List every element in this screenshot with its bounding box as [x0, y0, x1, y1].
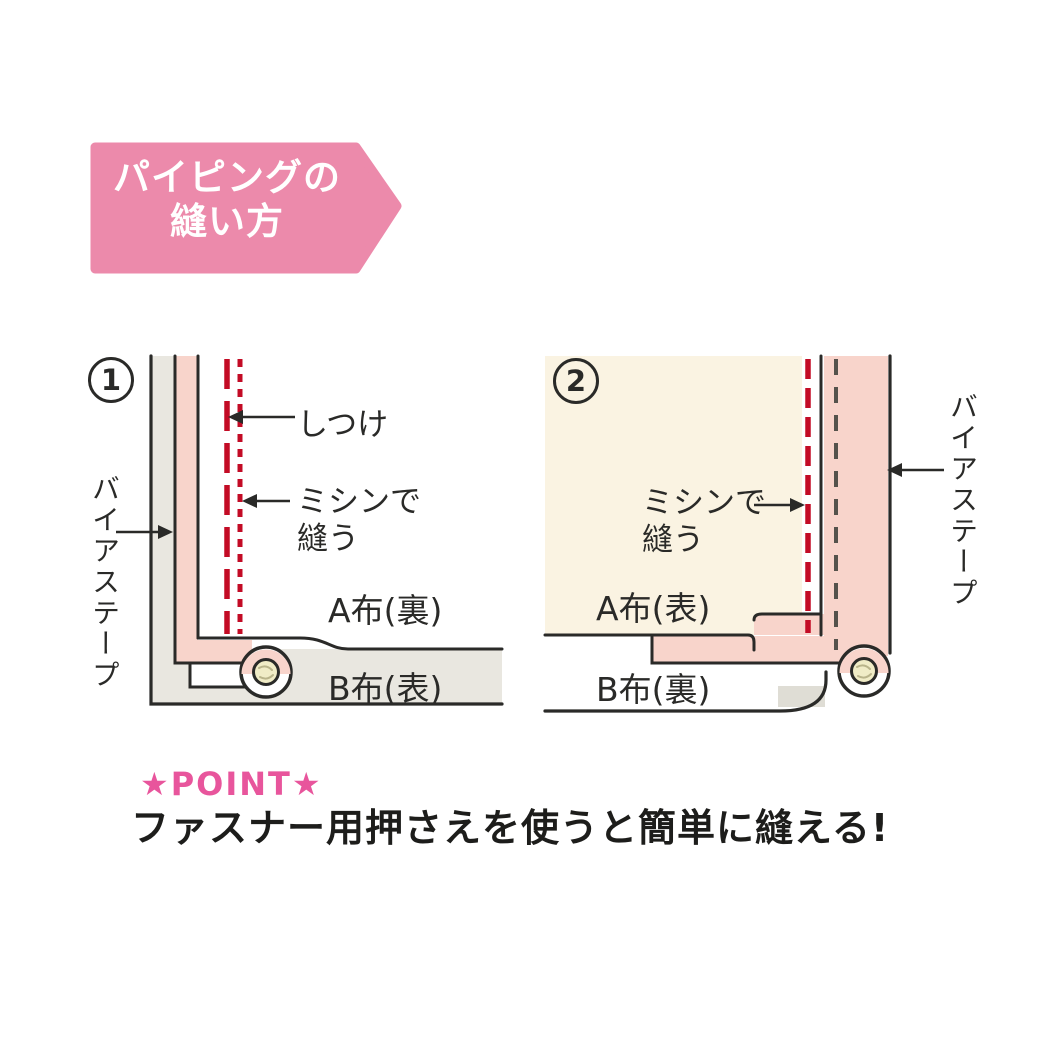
basting-label: しつけ: [297, 399, 388, 444]
machine-sew-label-1: ミシンで 縫う: [297, 484, 421, 558]
page-title-line2: 縫い方: [88, 200, 366, 244]
page-title: パイピングの 縫い方: [88, 156, 366, 243]
point-text: ファスナー用押さえを使うと簡単に縫える!: [131, 797, 889, 852]
bias-tape-arrow-icon-1: [116, 525, 174, 539]
step-number-2: 2: [553, 358, 599, 404]
step-number-1-text: 1: [101, 363, 121, 397]
machine-sew-label-2: ミシンで 縫う: [642, 485, 766, 559]
bias-tape-label-1: バイアステープ: [84, 474, 124, 691]
fabric-b-label-1: B布(表): [328, 662, 442, 710]
step-number-2-text: 2: [566, 364, 586, 398]
machine-sew-label-2-line1: ミシンで: [642, 485, 766, 522]
fabric-b-fold-patch: [778, 686, 825, 707]
bias-tape-fold-step: [754, 614, 824, 635]
bias-tape-label-2: バイアステープ: [942, 392, 982, 609]
fabric-a-label-2: A布(表): [596, 582, 710, 630]
page: { "banner": { "title_line1": "パイピングの", "…: [0, 0, 1040, 1040]
machine-sew-label-2-line2: 縫う: [642, 522, 766, 559]
piping-cord-core: [852, 659, 877, 684]
page-title-line1: パイピングの: [88, 156, 366, 200]
step-number-1: 1: [88, 357, 134, 403]
piping-cord-core: [254, 660, 279, 685]
bias-tape-lower-band: [652, 636, 864, 663]
machine-sew-label-1-line1: ミシンで: [297, 484, 421, 521]
bias-tape-area: [824, 356, 888, 656]
fabric-b-label-2: B布(裏): [596, 663, 710, 711]
fabric-a-label-1: A布(裏): [328, 584, 442, 632]
bias-tape-arrow-icon-2: [886, 463, 944, 477]
machine-sew-label-1-line2: 縫う: [297, 521, 421, 558]
